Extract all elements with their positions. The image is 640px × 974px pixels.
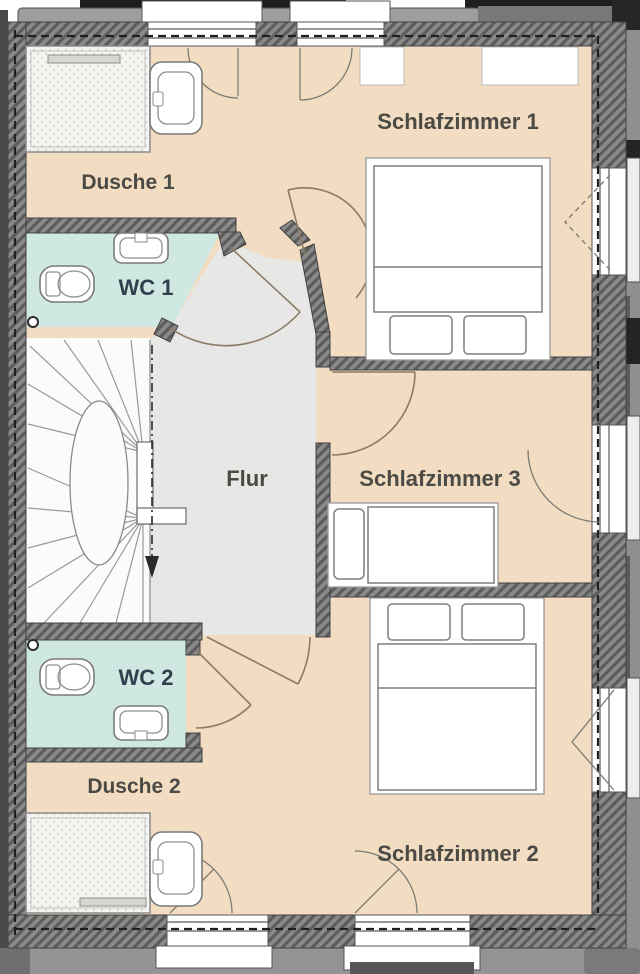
room-label-flur: Flur (226, 466, 268, 491)
basin-tap-2 (153, 860, 163, 874)
room-label-dusche2: Dusche 2 (87, 775, 180, 798)
wall-bottom-2 (268, 915, 355, 948)
dormer-sill-top-1 (142, 1, 262, 22)
wall-wc2-bottom (26, 748, 202, 762)
shower-tray-2 (26, 813, 150, 913)
single-bed-schlafzimmer3 (328, 503, 498, 587)
shower-drain-2 (80, 898, 146, 906)
wc2-toilet (40, 659, 94, 695)
shower-tray-1 (26, 46, 150, 152)
room-label-schlafzimmer2: Schlafzimmer 2 (377, 841, 538, 866)
wall-left (8, 22, 26, 948)
wall-niche-1 (360, 47, 404, 85)
wall-bottom-1 (8, 915, 167, 948)
pillow (462, 604, 524, 640)
wall-bottom-3 (470, 915, 626, 948)
wall-hall-right-upper (316, 332, 330, 367)
window-top-schlafzimmer1 (297, 22, 384, 46)
room-label-dusche1: Dusche 1 (81, 171, 175, 194)
wc2-sink (114, 706, 168, 740)
window-bottom-dusche2 (167, 915, 268, 948)
dormer-sill-top-2 (290, 1, 390, 22)
wc1-sink (114, 233, 168, 263)
wall-top-3 (384, 22, 626, 46)
wc1-toilet (40, 266, 94, 302)
room-label-wc1: WC 1 (119, 275, 174, 300)
dormer-sill-right-2 (627, 416, 640, 540)
double-bed-schlafzimmer2 (370, 598, 544, 794)
wall-niche-2 (482, 47, 578, 85)
basin-tap-1 (153, 92, 163, 106)
wall-top-2 (256, 22, 297, 46)
room-label-schlafzimmer1: Schlafzimmer 1 (377, 109, 538, 134)
dormer-sill-right-1 (627, 158, 640, 282)
room-label-schlafzimmer3: Schlafzimmer 3 (359, 466, 520, 491)
pillow (464, 316, 526, 354)
window-bottom-schlafzimmer2 (355, 915, 470, 948)
dormer-sill-bottom-1 (156, 946, 272, 968)
pillow (390, 316, 452, 354)
down-pipe-icon-1 (28, 317, 38, 327)
wall-top-1 (8, 22, 148, 46)
washbasin-1 (150, 62, 202, 134)
double-bed-schlafzimmer1 (366, 158, 550, 360)
dormer-sill-right-3 (627, 678, 640, 798)
room-label-wc2: WC 2 (119, 665, 174, 690)
wall-wc1-top (26, 218, 236, 233)
shower-drain-1 (48, 55, 120, 63)
down-pipe-icon-2 (28, 640, 38, 650)
pillow (334, 509, 364, 579)
window-top-dusche1 (148, 22, 256, 46)
washbasin-2 (150, 832, 202, 906)
floor-plan-svg: Schlafzimmer 1 Dusche 1 WC 1 Flur Schlaf… (0, 0, 640, 974)
pillow (388, 604, 450, 640)
stair-railing-foot (137, 508, 186, 524)
stairwell-opening (70, 401, 128, 565)
wall-wc2-door-stub-bottom (186, 733, 200, 748)
wall-wc2-top (26, 623, 202, 640)
dormer-base-bottom-2 (350, 962, 474, 974)
floor-plan-page: Schlafzimmer 1 Dusche 1 WC 1 Flur Schlaf… (0, 0, 640, 974)
